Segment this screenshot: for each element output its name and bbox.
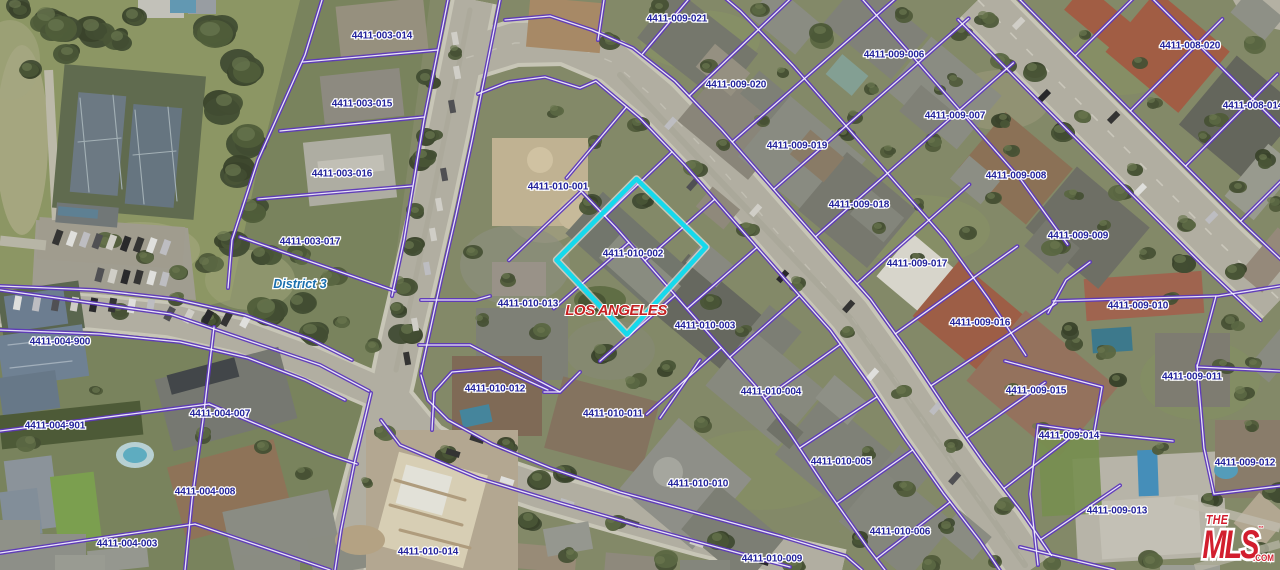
svg-text:4411-010-002: 4411-010-002 — [603, 249, 664, 260]
svg-text:4411-009-015: 4411-009-015 — [1006, 386, 1067, 397]
svg-text:4411-003-017: 4411-003-017 — [280, 237, 341, 248]
svg-text:4411-010-014: 4411-010-014 — [398, 547, 459, 558]
svg-text:.COM: .COM — [1253, 552, 1274, 563]
svg-text:4411-004-900: 4411-004-900 — [30, 337, 91, 348]
svg-text:4411-010-010: 4411-010-010 — [668, 479, 729, 490]
svg-text:4411-008-014: 4411-008-014 — [1223, 101, 1280, 112]
svg-text:4411-004-007: 4411-004-007 — [190, 409, 251, 420]
svg-text:4411-004-901: 4411-004-901 — [25, 421, 86, 432]
svg-text:4411-010-012: 4411-010-012 — [465, 384, 526, 395]
svg-text:4411-009-020: 4411-009-020 — [706, 80, 767, 91]
svg-text:4411-009-007: 4411-009-007 — [925, 111, 986, 122]
svg-text:4411-009-009: 4411-009-009 — [1048, 231, 1109, 242]
svg-text:4411-009-019: 4411-009-019 — [767, 141, 828, 152]
svg-text:4411-009-018: 4411-009-018 — [829, 200, 890, 211]
svg-text:4411-009-016: 4411-009-016 — [950, 318, 1011, 329]
svg-text:4411-010-011: 4411-010-011 — [583, 409, 644, 420]
svg-text:4411-010-005: 4411-010-005 — [811, 457, 872, 468]
svg-text:™: ™ — [1258, 525, 1264, 532]
svg-text:4411-010-006: 4411-010-006 — [870, 527, 931, 538]
svg-text:District 3: District 3 — [273, 277, 327, 291]
svg-text:4411-004-008: 4411-004-008 — [175, 487, 236, 498]
svg-text:LOS ANGELES: LOS ANGELES — [565, 302, 667, 319]
svg-text:4411-003-014: 4411-003-014 — [352, 31, 413, 42]
svg-text:4411-010-004: 4411-010-004 — [741, 387, 802, 398]
svg-text:4411-010-003: 4411-010-003 — [675, 321, 736, 332]
svg-text:4411-009-021: 4411-009-021 — [647, 14, 708, 25]
svg-text:4411-010-001: 4411-010-001 — [528, 182, 589, 193]
svg-text:4411-009-017: 4411-009-017 — [887, 259, 948, 270]
svg-text:4411-010-009: 4411-010-009 — [742, 554, 803, 565]
svg-text:4411-009-010: 4411-009-010 — [1108, 301, 1169, 312]
svg-text:4411-009-008: 4411-009-008 — [986, 171, 1047, 182]
svg-text:4411-003-016: 4411-003-016 — [312, 169, 373, 180]
svg-text:4411-009-013: 4411-009-013 — [1087, 506, 1148, 517]
svg-text:4411-010-013: 4411-010-013 — [498, 299, 559, 310]
svg-text:4411-008-020: 4411-008-020 — [1160, 41, 1221, 52]
svg-text:4411-003-015: 4411-003-015 — [332, 99, 393, 110]
svg-text:MLS: MLS — [1202, 522, 1259, 567]
svg-text:4411-009-014: 4411-009-014 — [1039, 431, 1100, 442]
svg-text:4411-009-006: 4411-009-006 — [864, 50, 925, 61]
svg-text:4411-009-012: 4411-009-012 — [1215, 458, 1276, 469]
svg-text:4411-009-011: 4411-009-011 — [1162, 372, 1223, 383]
svg-text:4411-004-003: 4411-004-003 — [97, 539, 158, 550]
